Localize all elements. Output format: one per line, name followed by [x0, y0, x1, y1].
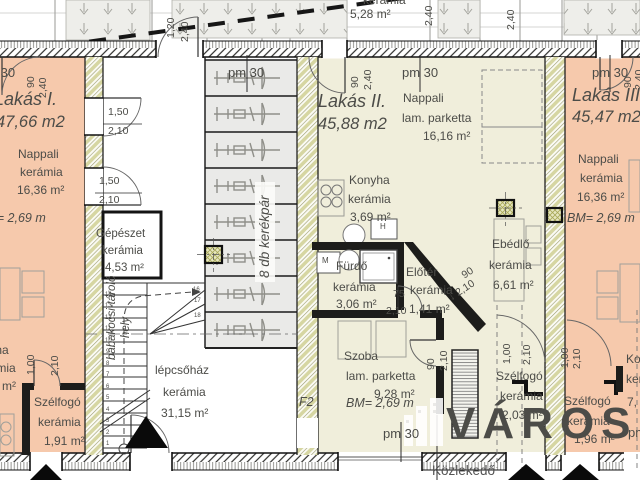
lakas2-szoba-material: lam. parketta [346, 370, 415, 383]
stair-num: 8 [106, 361, 109, 368]
stair-num: 10 [105, 338, 112, 345]
lakas2-nappali-material: lam. parketta [402, 112, 471, 125]
stair-num: 3 [106, 418, 109, 425]
lakas2-ebedlo-material: kerámia [489, 259, 532, 272]
lakas3-konyha-name: Konyha [626, 353, 640, 366]
fridge-label: H [380, 223, 386, 232]
dim-stair-door-b-h: 2,10 [99, 195, 119, 207]
lakas1-area: 47,66 m2 [0, 113, 65, 131]
watermark-text: VÁROSI [446, 400, 640, 448]
terrace-hatch-3 [438, 0, 480, 38]
dim-lakas2-door-w: 90 [350, 76, 362, 88]
lakas3-nappali-area: 16,36 m² [577, 191, 624, 204]
corridor-label: Közlekedő [432, 464, 495, 479]
dim-szelfogo3-h: 2,10 [572, 349, 584, 369]
level-mark-lakas1: pm 30 [0, 66, 15, 80]
lakas2-name: Lakás II. [318, 92, 386, 112]
stair-num: 12 [105, 315, 112, 322]
stair-num: 5 [106, 395, 109, 402]
lakas2-nappali-name: Nappali [403, 92, 444, 105]
lakas2-eloter-material: kerámia [410, 284, 453, 297]
mechanical-room-area: 4,53 m² [105, 262, 144, 275]
stair-num: 1 [106, 441, 109, 448]
lakas1-szelfogo-area: 1,91 m² [44, 435, 85, 448]
lakas1-szelfogo-name: Szélfogó [34, 396, 81, 409]
level-mark-lakas3: pm 30 [592, 66, 628, 80]
lakas1-konyha-name: Konyha [0, 344, 9, 357]
wall-opening-f2 [297, 418, 318, 448]
lakas2-area: 45,88 m2 [318, 115, 387, 133]
stairwell-name: lépcsőház [155, 364, 209, 377]
lakas2-ebedlo-name: Ebédlő [492, 238, 529, 251]
stair-num: 6 [106, 384, 109, 391]
level-mark-lakas2: pm 30 [402, 66, 438, 80]
dim-szoba-door-h: 2,10 [439, 351, 451, 371]
terrace-area-label: 5,28 m² [350, 8, 391, 21]
dim-szoba-door-w: 90 [426, 358, 438, 370]
dim-entry-door-w: 1,20 [166, 18, 178, 38]
lakas3-nappali-name: Nappali [578, 153, 619, 166]
lakas2-eloter-area: 1,41 m² [409, 303, 450, 316]
lakas1-bm: BM= 2,69 m [0, 212, 46, 226]
dim-szelfogo2-h: 2,10 [522, 345, 534, 365]
lakas3-nappali-material: kerámia [580, 172, 623, 185]
lakas2-konyha-name: Konyha [349, 174, 390, 187]
stairwell-material: kerámia [163, 386, 206, 399]
bike-count-label: 8 db kerékpár [258, 195, 273, 278]
stair-num: 11 [105, 326, 111, 333]
dim-szelfogo3-w: 1,00 [560, 348, 572, 368]
dim-stair-door-b-w: 1,50 [99, 176, 119, 188]
level-mark-lakas2-bottom: pm 30 [383, 427, 419, 441]
dim-top-left-w: 90 [26, 76, 38, 88]
lakas1-name: Lakás I. [0, 90, 57, 110]
lakas2-konyha-material: kerámia [348, 193, 391, 206]
dim-szelfogo1-w: 1,00 [26, 355, 38, 375]
stair-num-winder: 18 [194, 313, 201, 320]
stair-num-winder: 16 [193, 287, 200, 294]
stair-num: 4 [106, 407, 109, 414]
floor-plan: kerámia 5,28 m² 90 2,40 1,20 2,40 2,40 2… [0, 0, 640, 480]
mechanical-room-material: kerámia [102, 245, 143, 258]
lakas1-szelfogo-material: kerámia [38, 416, 81, 429]
lakas1-nappali-material: kerámia [20, 166, 63, 179]
lakas2-furdo-area: 3,06 m² [336, 298, 377, 311]
stair-num: 14 [105, 292, 112, 299]
stair-num: 9 [106, 349, 109, 356]
lakas1-nappali-area: 16,36 m² [17, 184, 64, 197]
dim-szelfogo2-w: 1,00 [502, 344, 514, 364]
lakas3-name: Lakás III. [572, 86, 640, 106]
dim-stair-door-a-h: 2,10 [108, 126, 128, 138]
dim-top-right: 2,40 [506, 10, 518, 30]
dim-bath-door-h: 2,10 [386, 306, 406, 318]
lakas2-bm: BM= 2,69 m [346, 397, 414, 411]
lakas2-nappali-area: 16,16 m² [423, 130, 470, 143]
lakas3-area: 45,47 m2 [572, 108, 640, 126]
lakas2-ebedlo-area: 6,61 m² [493, 279, 534, 292]
lakas1-nappali-name: Nappali [18, 148, 59, 161]
stair-num-winder: 17 [194, 298, 201, 305]
lakas3-konyha-material: kerámia [626, 373, 640, 386]
dim-bath-door-w: 75 [393, 289, 405, 301]
lakas1-konyha-material: kerámia [0, 362, 16, 375]
f2-opening-label: F2 [299, 396, 314, 410]
terrace-hatch-1 [66, 0, 150, 40]
lakas2-eloter-name: Előtér [406, 266, 437, 279]
lakas2-furdo-material: kerámia [333, 281, 376, 294]
terrace-hatch-4 [564, 0, 640, 35]
level-mark-bikes: pm 30 [228, 66, 264, 80]
washer-label: M [322, 257, 329, 266]
lakas2-szelfogo-name: Szélfogó [496, 370, 543, 383]
dim-entry-door-h: 2,40 [180, 22, 192, 42]
lakas3-bm: BM= 2,69 m [567, 212, 635, 226]
lakas2-furdo-name: Fürdő [336, 260, 367, 273]
stairwell-area: 31,15 m² [161, 407, 208, 420]
lakas1-konyha-area: m² [2, 380, 16, 393]
stair-num: 13 [105, 303, 112, 310]
stroller-storage-label-2: hely [120, 317, 133, 338]
dim-szelfogo1-h: 2,10 [50, 356, 62, 376]
mechanical-room-name: Gépészet [96, 228, 145, 241]
lakas2-szoba-name: Szoba [344, 350, 378, 363]
dim-top-mid: 2,40 [424, 6, 436, 26]
dim-lakas2-door-h: 2,40 [363, 70, 375, 90]
stair-num: 7 [106, 372, 109, 379]
dim-stair-door-a-w: 1,50 [108, 107, 128, 119]
stair-num: 2 [106, 430, 109, 437]
